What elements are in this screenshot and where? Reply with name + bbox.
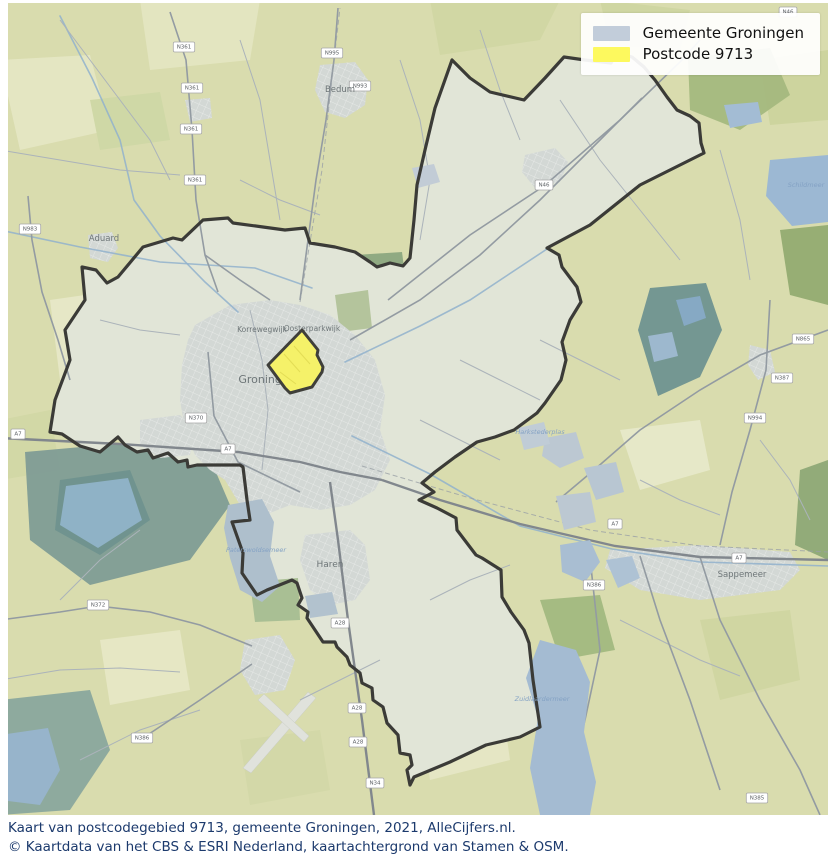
- road-shield-label: N386: [135, 736, 150, 742]
- town-label-sappemeer: Sappemeer: [718, 570, 767, 580]
- road-shield-label: A7: [611, 522, 619, 528]
- map-caption: Kaart van postcodegebied 9713, gemeente …: [0, 815, 828, 861]
- road-shield-label: N865: [796, 337, 811, 343]
- road-shield-label: N370: [189, 416, 204, 422]
- caption-line-1: Kaart van postcodegebied 9713, gemeente …: [8, 819, 828, 838]
- town-label-bedum: Bedum: [325, 85, 355, 95]
- road-shield-label: A7: [224, 447, 232, 453]
- road-shield-label: N372: [91, 603, 106, 609]
- road-shield-label: A28: [335, 621, 346, 627]
- road-shield-label: A28: [352, 706, 363, 712]
- caption-line-2: © Kaartdata van het CBS & ESRI Nederland…: [8, 838, 828, 857]
- map-container: N361N361N361N361N995N993N983N46N46A7A7A7…: [0, 0, 828, 815]
- water-label-zuidlaardermeer: Zuidlaardermeer: [514, 695, 571, 703]
- legend-label-gemeente-groningen: Gemeente Groningen: [643, 24, 804, 42]
- road-shield-label: N361: [185, 86, 200, 92]
- road-shield-label: N361: [188, 178, 203, 184]
- town-label-korrewegwijk: Korrewegwijk: [237, 325, 287, 334]
- page: N361N361N361N361N995N993N983N46N46A7A7A7…: [0, 0, 828, 861]
- field-patch: [140, 0, 260, 70]
- road-shield-label: N994: [748, 416, 763, 422]
- water-label-paterswoldsemeer: Paterswoldsemeer: [226, 546, 287, 554]
- legend-label-postcode-9713: Postcode 9713: [643, 45, 754, 63]
- road-shield-label: N361: [184, 127, 199, 133]
- town-label-oosterparkwijk: Oosterparkwijk: [284, 324, 341, 333]
- road-shield-label: N387: [775, 376, 790, 382]
- road-shield-label: N34: [369, 781, 381, 787]
- road-shield-label: N46: [538, 183, 550, 189]
- map-canvas[interactable]: N361N361N361N361N995N993N983N46N46A7A7A7…: [0, 0, 828, 815]
- legend-item-postcode: Postcode 9713: [593, 45, 804, 63]
- legend-item-gemeente: Gemeente Groningen: [593, 24, 804, 42]
- lake: [305, 592, 338, 618]
- forest-patch: [795, 460, 828, 560]
- road-shield-label: N995: [325, 51, 340, 57]
- road-shield-label: A7: [14, 432, 22, 438]
- legend-swatch-gemeente-groningen: [593, 26, 630, 41]
- road-shield-label: A7: [735, 556, 743, 562]
- legend: Gemeente Groningen Postcode 9713: [581, 13, 820, 75]
- road-shield-label: N385: [750, 796, 765, 802]
- road-shield-label: N386: [587, 583, 602, 589]
- road-shield-label: N361: [177, 45, 192, 51]
- top-margin: [0, 0, 828, 3]
- left-margin: [0, 0, 8, 815]
- town-label-haren: Haren: [316, 560, 343, 570]
- legend-swatch-postcode-9713: [593, 47, 630, 62]
- water-label-harkstederplas: Harkstederplas: [515, 428, 565, 436]
- water-label-schildmeer: Schildmeer: [788, 181, 826, 189]
- road-shield-label: A28: [353, 740, 364, 746]
- town-label-aduard: Aduard: [89, 234, 119, 244]
- road-shield-label: N983: [23, 227, 38, 233]
